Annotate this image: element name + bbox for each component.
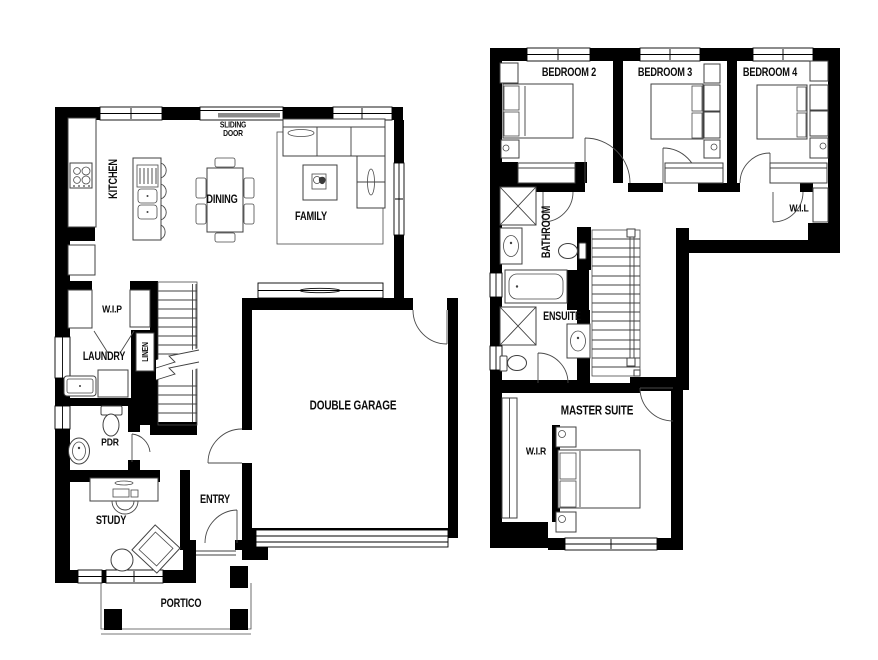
study-label: STUDY [96, 515, 127, 527]
pdr-window [55, 406, 70, 429]
laundry-label: LAUNDRY [83, 351, 126, 363]
double-garage-label: DOUBLE GARAGE [310, 399, 397, 412]
garage-rear-door-opening [413, 298, 447, 310]
coffee-table [303, 165, 337, 200]
kitchen-window [100, 107, 162, 120]
wil-shelf [813, 188, 828, 222]
bathroom-toilet [559, 243, 587, 259]
garage-rear-window [258, 283, 383, 298]
bedroom4-window [753, 48, 813, 61]
ensuite-label: ENSUITE [543, 311, 581, 323]
entry-step [196, 551, 236, 555]
family-window [394, 163, 404, 235]
linen-label: LINEN [141, 342, 151, 362]
master-suite-label: MASTER SUITE [561, 404, 634, 417]
floorplan-drawing: KITCHEN SLIDING DOOR DINING FAMILY W.I.P… [0, 0, 878, 660]
bedroom2-label: BEDROOM 2 [542, 67, 597, 79]
garage-side-door-opening [242, 430, 252, 463]
bedroom4-furniture [757, 61, 828, 183]
study-side-table [111, 549, 133, 571]
floorplan-page: KITCHEN SLIDING DOOR DINING FAMILY W.I.P… [0, 0, 878, 660]
ground-floor-plan: KITCHEN SLIDING DOOR DINING FAMILY W.I.P… [55, 107, 458, 634]
bathroom-window [490, 273, 502, 297]
portico-label: PORTICO [161, 598, 202, 610]
ensuite-vanity [567, 324, 590, 358]
upper-floor-plan: BEDROOM 2 BEDROOM 3 BEDROOM 4 BATHROOM W… [490, 48, 840, 550]
bedroom3-label: BEDROOM 3 [638, 67, 693, 79]
study-windows [78, 570, 163, 583]
bedroom4-label: BEDROOM 4 [743, 67, 798, 79]
pdr-label: PDR [101, 437, 119, 449]
bedroom3-window [640, 48, 700, 61]
bedroom3-furniture [651, 64, 723, 183]
laundry-window [55, 337, 70, 378]
study-desk [90, 478, 158, 514]
bathtub [505, 270, 567, 303]
pdr-basin [69, 438, 90, 464]
sliding-door-label-2: DOOR [223, 129, 243, 139]
ground-staircase [156, 282, 199, 425]
study-door-opening [160, 470, 180, 482]
laundry-sink [64, 376, 96, 396]
sliding-door [200, 107, 283, 120]
dining-window [333, 107, 392, 120]
master-window [565, 538, 657, 550]
bathroom-label: BATHROOM [541, 206, 553, 258]
kitchen-label: KITCHEN [108, 159, 120, 199]
entry-label: ENTRY [200, 494, 230, 506]
family-label: FAMILY [295, 211, 327, 223]
wir-label: W.I.R [526, 446, 546, 458]
bathroom-vanity [500, 228, 522, 264]
bedroom2-window [527, 48, 590, 61]
dining-label: DINING [206, 194, 237, 206]
study-armchair [132, 525, 180, 573]
wip-label: W.I.P [102, 304, 122, 316]
master-bed [556, 427, 640, 532]
bathroom-shower [500, 187, 536, 225]
pdr-toilet [101, 406, 122, 436]
island-bench [133, 158, 166, 240]
upper-staircase [592, 229, 640, 376]
ensuite-toilet [500, 356, 527, 372]
cooktop-icon [70, 163, 92, 188]
washing-machine [98, 370, 128, 397]
ensuite-shower [500, 307, 536, 345]
wil-label: W.I.L [789, 203, 809, 215]
garage-door [256, 530, 448, 547]
wir-wardrobe-rail [502, 398, 517, 518]
kitchen-counter [68, 118, 96, 275]
